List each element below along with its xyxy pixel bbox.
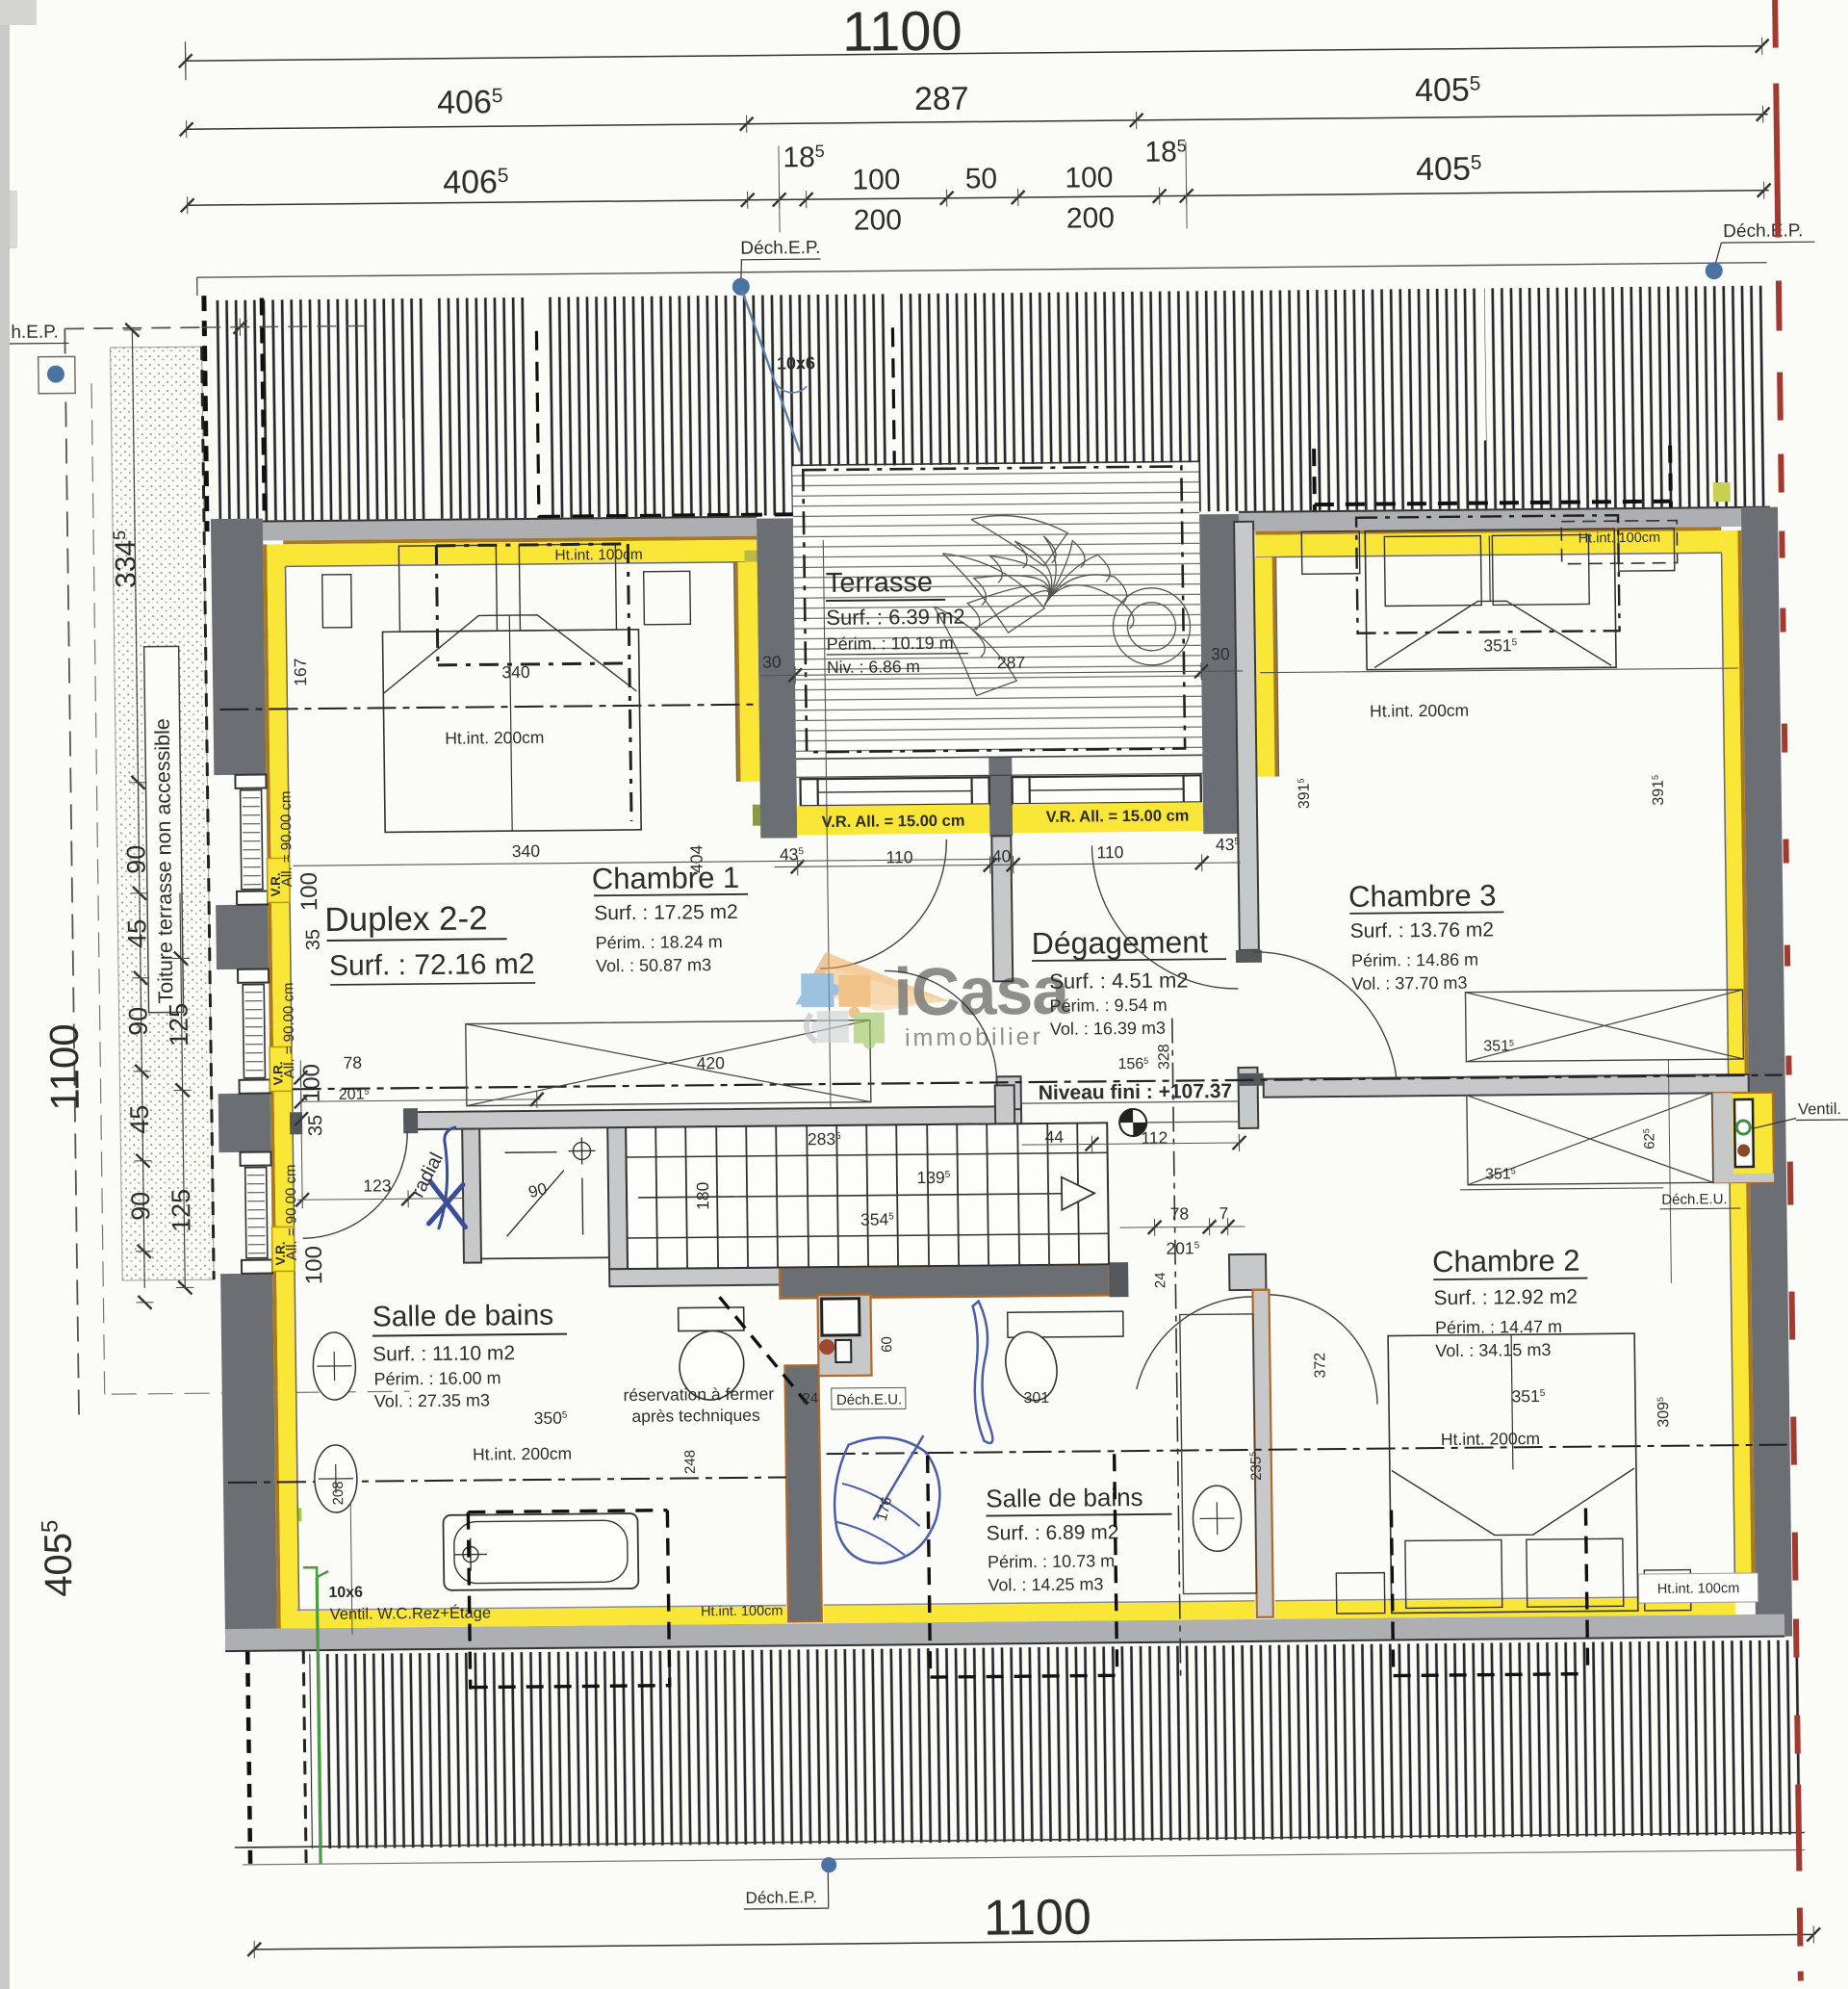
svg-text:Vol. : 14.25 m3: Vol. : 14.25 m3 bbox=[988, 1574, 1103, 1594]
svg-text:30: 30 bbox=[1211, 644, 1230, 663]
svg-text:45: 45 bbox=[122, 919, 151, 948]
svg-text:Salle de bains: Salle de bains bbox=[372, 1300, 553, 1333]
svg-text:Surf. : 4.51 m2: Surf. : 4.51 m2 bbox=[1049, 968, 1189, 993]
svg-text:Chambre 3: Chambre 3 bbox=[1348, 878, 1497, 913]
svg-text:Ht.int. 100cm: Ht.int. 100cm bbox=[1657, 1581, 1740, 1597]
svg-text:372: 372 bbox=[1312, 1353, 1328, 1379]
svg-text:100: 100 bbox=[301, 1246, 328, 1284]
svg-text:réservation à fermer: réservation à fermer bbox=[623, 1384, 774, 1405]
svg-text:Toiture terrasse non accessibl: Toiture terrasse non accessible bbox=[151, 718, 178, 1004]
svg-text:45: 45 bbox=[125, 1105, 154, 1134]
svg-text:Vol. : 37.70 m3: Vol. : 37.70 m3 bbox=[1351, 973, 1467, 994]
svg-text:125: 125 bbox=[167, 1189, 196, 1232]
svg-text:Périm. : 16.00 m: Périm. : 16.00 m bbox=[373, 1368, 500, 1388]
svg-text:après techniques: après techniques bbox=[631, 1406, 760, 1426]
svg-text:Vol. : 34.15 m3: Vol. : 34.15 m3 bbox=[1435, 1340, 1551, 1360]
svg-text:Ht.int. 100cm: Ht.int. 100cm bbox=[554, 547, 643, 564]
svg-text:Ht.int. 100cm: Ht.int. 100cm bbox=[1578, 530, 1661, 547]
svg-text:Surf. : 12.92 m2: Surf. : 12.92 m2 bbox=[1433, 1286, 1578, 1309]
svg-text:Vol. : 50.87 m3: Vol. : 50.87 m3 bbox=[596, 955, 711, 975]
svg-text:7: 7 bbox=[1219, 1203, 1228, 1223]
svg-text:Surf. : 72.16 m2: Surf. : 72.16 m2 bbox=[329, 948, 535, 982]
svg-text:Vol. : 27.35 m3: Vol. : 27.35 m3 bbox=[374, 1390, 490, 1410]
svg-text:Déch.E.P.: Déch.E.P. bbox=[740, 238, 820, 259]
svg-text:Ht.int. 100cm: Ht.int. 100cm bbox=[701, 1604, 783, 1620]
svg-text:All. = 90.00 cm: All. = 90.00 cm bbox=[283, 1164, 300, 1260]
svg-text:iCasa: iCasa bbox=[893, 953, 1071, 1030]
svg-text:180: 180 bbox=[693, 1181, 712, 1210]
svg-text:Surf. : 17.25 m2: Surf. : 17.25 m2 bbox=[594, 901, 738, 924]
svg-text:Périm. : 14.86 m: Périm. : 14.86 m bbox=[1351, 950, 1478, 970]
svg-text:Duplex 2-2: Duplex 2-2 bbox=[324, 899, 488, 939]
svg-text:35: 35 bbox=[305, 1115, 326, 1136]
svg-text:Ventil. W.C.Rez+Étage: Ventil. W.C.Rez+Étage bbox=[330, 1603, 492, 1623]
svg-text:Ht.int. 200cm: Ht.int. 200cm bbox=[1441, 1429, 1540, 1449]
svg-text:90: 90 bbox=[126, 1192, 155, 1221]
svg-text:Périm. : 10.73 m: Périm. : 10.73 m bbox=[988, 1551, 1115, 1571]
svg-text:60: 60 bbox=[879, 1336, 895, 1353]
svg-text:Ht.int. 200cm: Ht.int. 200cm bbox=[473, 1444, 572, 1464]
svg-text:328: 328 bbox=[1156, 1044, 1172, 1070]
svg-text:340: 340 bbox=[512, 841, 541, 861]
svg-text:Déch.E.P.: Déch.E.P. bbox=[745, 1888, 817, 1907]
svg-text:Périm. : 18.24 m: Périm. : 18.24 m bbox=[596, 932, 723, 952]
svg-text:1100: 1100 bbox=[41, 1023, 88, 1111]
svg-text:30: 30 bbox=[762, 652, 782, 671]
svg-text:248: 248 bbox=[682, 1450, 699, 1474]
svg-text:40: 40 bbox=[992, 846, 1012, 865]
svg-text:100: 100 bbox=[852, 164, 900, 195]
svg-text:90: 90 bbox=[121, 845, 150, 874]
svg-text:112: 112 bbox=[1141, 1128, 1168, 1148]
svg-text:Terrasse: Terrasse bbox=[826, 567, 934, 599]
svg-text:Surf. : 6.39 m2: Surf. : 6.39 m2 bbox=[826, 605, 965, 630]
svg-text:208: 208 bbox=[330, 1481, 346, 1505]
svg-text:Niveau fini : +107.37: Niveau fini : +107.37 bbox=[1039, 1080, 1233, 1104]
svg-text:Ht.int. 200cm: Ht.int. 200cm bbox=[1370, 701, 1469, 721]
svg-text:78: 78 bbox=[343, 1053, 362, 1072]
svg-text:110: 110 bbox=[1096, 842, 1123, 862]
svg-text:All. = 90.00 cm: All. = 90.00 cm bbox=[278, 790, 295, 887]
svg-text:90: 90 bbox=[123, 1007, 152, 1036]
svg-text:44: 44 bbox=[1045, 1127, 1065, 1147]
svg-text:100: 100 bbox=[1065, 162, 1113, 194]
svg-text:1100: 1100 bbox=[984, 1890, 1092, 1947]
svg-text:V.R. All. = 15.00 cm: V.R. All. = 15.00 cm bbox=[1046, 807, 1190, 825]
svg-text:78: 78 bbox=[1170, 1203, 1190, 1223]
svg-text:110: 110 bbox=[885, 847, 912, 866]
svg-text:301: 301 bbox=[1023, 1390, 1049, 1407]
svg-text:Surf. : 6.89 m2: Surf. : 6.89 m2 bbox=[987, 1521, 1119, 1544]
svg-text:Surf. : 13.76 m2: Surf. : 13.76 m2 bbox=[1349, 918, 1494, 942]
svg-text:123: 123 bbox=[363, 1175, 391, 1195]
svg-text:167: 167 bbox=[291, 659, 310, 686]
svg-text:100: 100 bbox=[296, 872, 323, 911]
svg-text:All. = 90.00 cm: All. = 90.00 cm bbox=[280, 982, 297, 1078]
svg-text:100: 100 bbox=[298, 1064, 325, 1102]
svg-text:10x6: 10x6 bbox=[328, 1585, 363, 1601]
svg-text:Chambre 1: Chambre 1 bbox=[592, 861, 740, 895]
svg-text:Périm. : 10.19 m: Périm. : 10.19 m bbox=[827, 633, 954, 654]
svg-text:125: 125 bbox=[164, 1003, 193, 1046]
svg-text:h.E.P.: h.E.P. bbox=[11, 323, 59, 343]
svg-text:200: 200 bbox=[854, 204, 902, 236]
svg-text:24: 24 bbox=[1152, 1272, 1168, 1288]
svg-text:Ventil.: Ventil. bbox=[1798, 1100, 1841, 1118]
svg-text:420: 420 bbox=[697, 1053, 726, 1072]
svg-text:24: 24 bbox=[802, 1390, 818, 1407]
svg-text:Déch.E.P.: Déch.E.P. bbox=[1723, 220, 1803, 242]
svg-text:10x6: 10x6 bbox=[777, 353, 815, 373]
svg-text:340: 340 bbox=[501, 662, 530, 682]
svg-text:35: 35 bbox=[302, 929, 323, 950]
svg-text:50: 50 bbox=[965, 163, 998, 194]
svg-text:immobilier: immobilier bbox=[905, 1023, 1043, 1051]
svg-text:Surf. : 11.10 m2: Surf. : 11.10 m2 bbox=[372, 1342, 515, 1365]
svg-text:287: 287 bbox=[997, 653, 1025, 672]
svg-text:200: 200 bbox=[1066, 202, 1115, 234]
svg-text:287: 287 bbox=[914, 81, 969, 118]
svg-text:Ht.int. 200cm: Ht.int. 200cm bbox=[445, 728, 544, 748]
svg-text:Chambre 2: Chambre 2 bbox=[1432, 1244, 1580, 1279]
svg-text:Déch.E.U.: Déch.E.U. bbox=[1661, 1191, 1728, 1208]
svg-text:Salle de bains: Salle de bains bbox=[986, 1483, 1143, 1513]
svg-text:V.R. All. = 15.00 cm: V.R. All. = 15.00 cm bbox=[822, 813, 965, 831]
svg-text:Déch.E.U.: Déch.E.U. bbox=[836, 1391, 903, 1408]
